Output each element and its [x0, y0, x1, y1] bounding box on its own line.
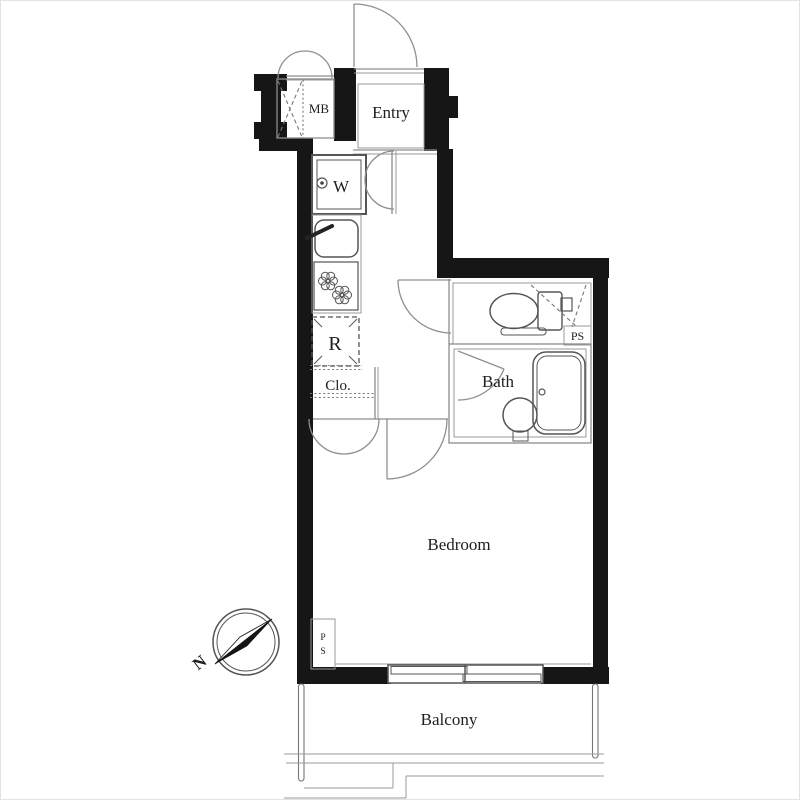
- closet: Clo.: [309, 366, 379, 455]
- washer-label: W: [333, 177, 350, 196]
- compass: N: [189, 609, 279, 675]
- toilet-door-arc: [398, 280, 451, 333]
- bedroom: Bedroom P S: [311, 535, 591, 669]
- bedroom-label: Bedroom: [427, 535, 490, 554]
- meter-box-door-arc: [278, 51, 305, 78]
- bedroom-partition: [313, 419, 448, 479]
- pipe-space-bottom-s: S: [320, 647, 325, 657]
- stove-burner-icon: [319, 272, 338, 290]
- exterior-walls: [254, 68, 609, 684]
- balcony: Balcony: [284, 684, 604, 798]
- refrigerator-label: R: [328, 333, 342, 355]
- toilet-icon: [490, 292, 572, 335]
- kitchen-counter: [312, 215, 361, 313]
- entry-label: Entry: [372, 103, 410, 122]
- toilet-room: PS: [398, 279, 591, 345]
- pipe-space-bottom-p: P: [320, 633, 325, 643]
- bath-label: Bath: [482, 372, 515, 391]
- entry-door-arc: [354, 4, 417, 67]
- bedroom-door-arc: [387, 419, 447, 479]
- wash-basin-icon: [503, 398, 537, 441]
- compass-north-label: N: [189, 651, 211, 674]
- pipe-space-bottom-box: [311, 619, 335, 669]
- balcony-rail-left: [299, 684, 305, 781]
- washer-space: W: [312, 151, 396, 214]
- meter-box-label: MB: [309, 101, 330, 116]
- closet-label: Clo.: [325, 378, 350, 394]
- bathtub-icon: [533, 352, 585, 434]
- kitchen-sink-icon: [315, 220, 358, 257]
- balcony-label: Balcony: [421, 710, 478, 729]
- floorplan-canvas: MB Entry W R: [0, 0, 800, 800]
- sliding-window: [388, 665, 543, 683]
- balcony-rail-right: [593, 684, 599, 758]
- pipe-space-right-label: PS: [571, 329, 584, 343]
- bath-door: [458, 351, 504, 369]
- bath-room: Bath: [449, 344, 591, 443]
- stove-burner-icon: [333, 286, 352, 304]
- washer-door-arc: [365, 151, 394, 180]
- floorplan-drawing: MB Entry W R: [1, 1, 800, 800]
- closet-door-arc: [309, 419, 344, 454]
- refrigerator-space: R: [312, 317, 359, 366]
